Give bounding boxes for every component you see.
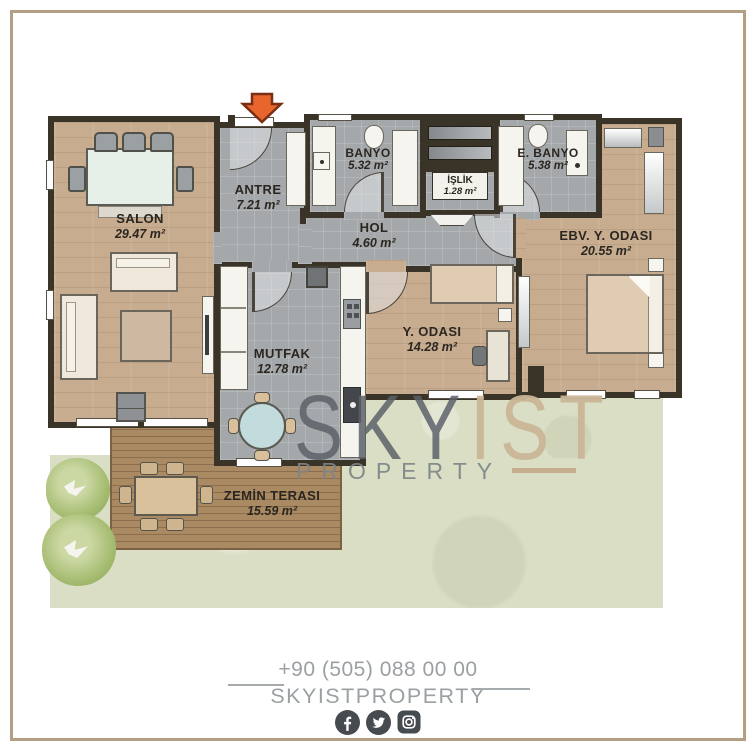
kitchen-counter-left [220,266,248,390]
wardrobe-strip [518,276,530,348]
bed-pillows [648,276,662,352]
ac-unit [648,127,664,147]
dining-chair [176,166,194,192]
dining-chair [122,132,146,152]
toilet [364,125,384,149]
sofa-side [60,294,98,380]
sideboard [98,206,162,218]
ebanyo-window [524,114,554,121]
instagram-icon [397,710,421,734]
sofa-cushion [116,258,170,268]
entrance-arrow-icon [240,92,284,124]
tree [42,514,116,586]
watermark-dash [512,468,576,473]
sofa-cushion [66,302,76,372]
shaft-slot [428,146,492,160]
room-label-islik: İŞLİK 1.28 m² [432,172,488,200]
social-icons-row [0,710,756,735]
burner [354,304,359,309]
terrace-chair [166,462,184,475]
door-hinge [228,115,235,128]
washbasin-counter [566,130,588,176]
closet [604,128,642,148]
burner [354,313,359,318]
kitchen-chair [254,392,270,403]
banyo-window [318,114,352,121]
tv-unit [202,296,214,374]
burner [347,313,352,318]
dining-chair [94,132,118,152]
service-shaft [420,114,500,172]
sofa [110,252,178,292]
desk [486,330,510,382]
stove [343,299,361,329]
shaft-slot [428,126,492,140]
fridge [306,266,328,288]
toilet [528,124,548,148]
kitchen-chair [254,450,270,461]
tree-highlight [64,480,86,496]
twitter-icon [366,710,391,735]
kitchen-chair [228,418,239,434]
floor-plan-page: SALON 29.47 m² ANTRE 7.21 m² BANYO 5.32 … [0,0,756,756]
double-bed [586,274,664,354]
tv-screen [205,315,209,355]
terrace-chair [200,486,213,504]
facebook-icon [335,710,360,735]
tree [46,458,110,520]
fireplace-cabinet [116,392,146,422]
nightstand [498,308,512,322]
terrace-chair [166,518,184,531]
blanket-fold [628,276,650,298]
opening-antre-hol [298,224,312,264]
dining-table [86,148,174,206]
watermark-subtitle-row: PROPERTY [296,458,576,485]
terrace-chair [140,518,158,531]
salon-window-left-2 [46,290,54,320]
coffee-table [120,310,172,362]
wardrobe [644,152,664,214]
tree-highlight [64,540,88,558]
desk-chair [472,346,487,366]
nightstand [648,258,664,272]
footer-brand: SKYISTPROPERTY [0,684,756,709]
terrace-chair [140,462,158,475]
terrace-table [134,476,198,516]
salon-window-left-1 [46,160,54,190]
footer-phone: +90 (505) 088 00 00 [0,658,756,682]
basin-dot [320,160,324,164]
room-name: İŞLİK [433,175,487,187]
single-bed [430,264,514,304]
cabinet-divider [118,408,144,409]
nightstand [648,352,664,368]
counter-divider [221,307,246,309]
room-area: 1.28 m² [433,187,487,198]
footer-divider-right [472,688,530,690]
footer-divider-left [228,684,284,686]
terrace-chair [119,486,132,504]
burner [347,304,352,309]
watermark-property-text: PROPERTY [296,458,502,484]
washbasin [313,152,330,170]
dining-chair [68,166,86,192]
dining-chair [150,132,174,152]
bed-pillow [496,266,512,302]
antre-wardrobe [286,132,306,206]
opening-salon-antre [213,232,222,264]
counter-divider [221,351,246,353]
shower-cabin [498,126,524,206]
basin-dot [575,163,580,168]
banyo-door-panel [392,130,418,206]
kitchen-round-table [238,402,286,450]
